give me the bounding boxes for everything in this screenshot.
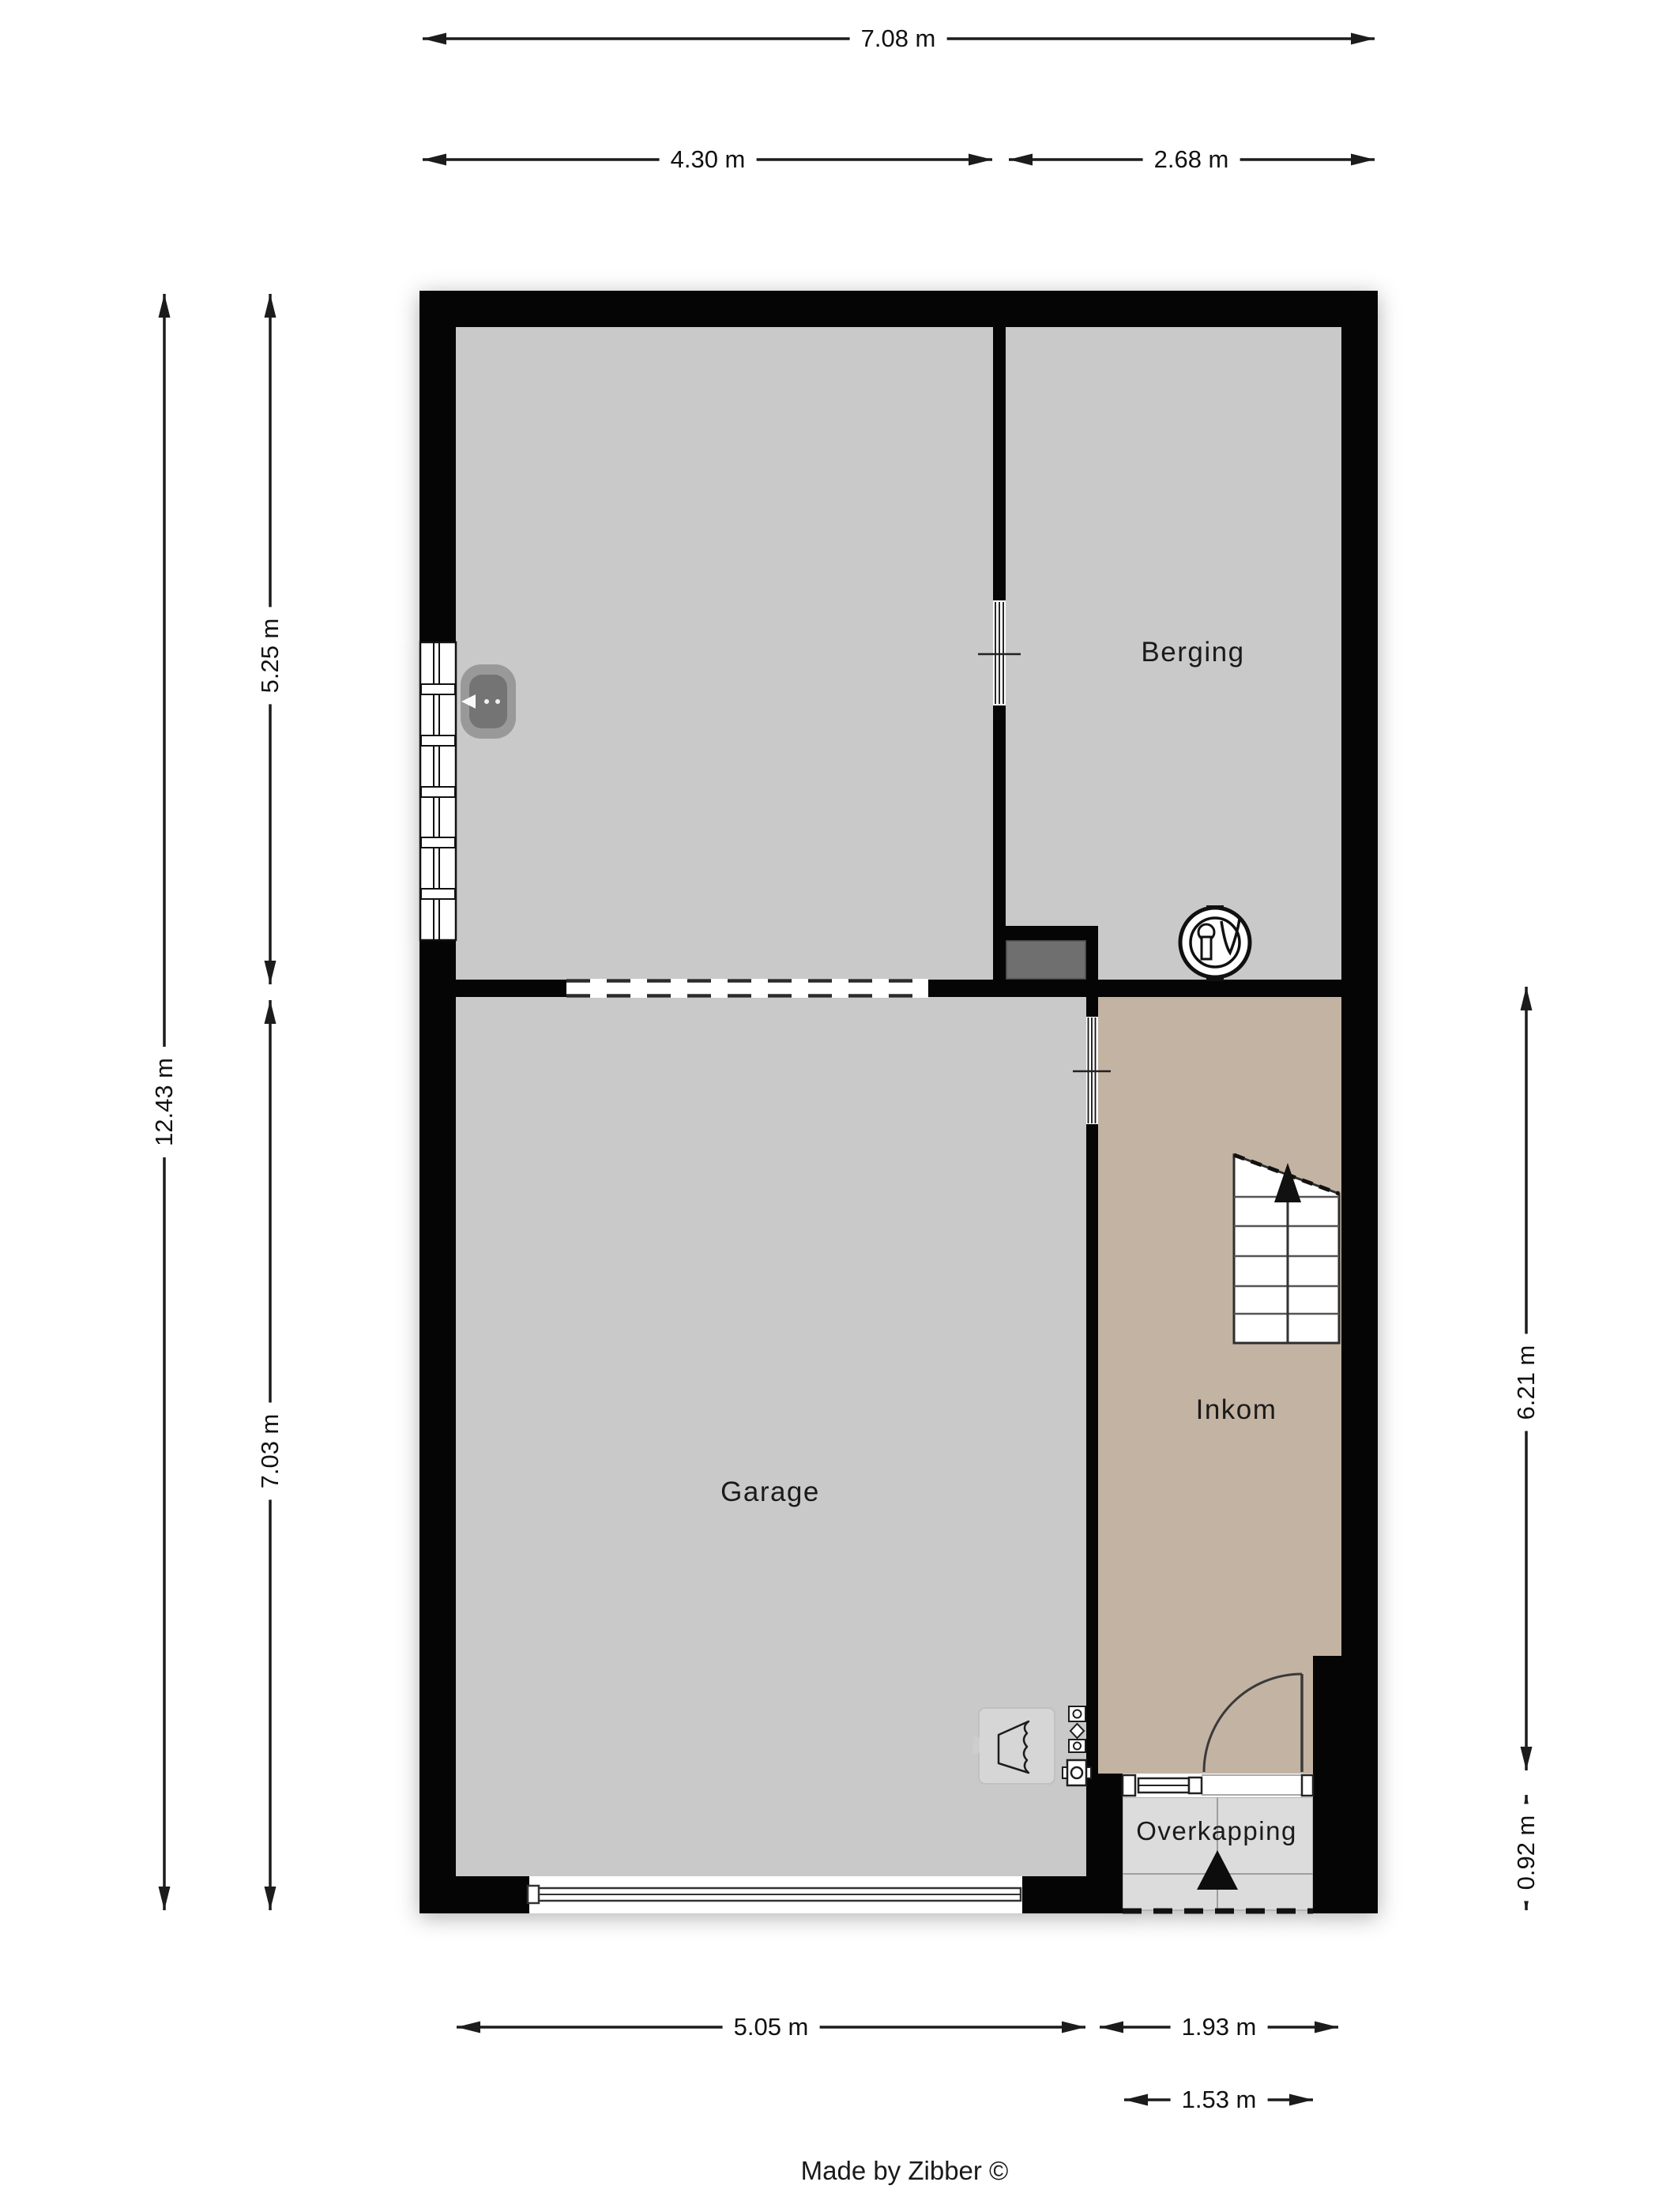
radiator-icon (461, 664, 516, 739)
dim-label-inkom-width: 1.93 m (1171, 2013, 1268, 2041)
dim-label-width-total: 7.08 m (850, 24, 947, 53)
room-label-berging: Berging (1141, 637, 1244, 668)
dim-label-height-total: 12.43 m (150, 1047, 179, 1157)
dim-label-height-lower: 7.03 m (256, 1403, 284, 1500)
floorplan-page: Berging Garage Inkom Overkapping 7.08 m … (0, 0, 1659, 2212)
room-label-inkom: Inkom (1196, 1394, 1277, 1426)
window-left (420, 642, 456, 940)
dim-label-overkapping-depth: 0.92 m (1512, 1804, 1540, 1902)
dim-label-overkapping-width: 1.53 m (1171, 2086, 1268, 2114)
dim-label-inkom-height: 6.21 m (1512, 1334, 1540, 1431)
wall-left (419, 291, 456, 1913)
dim-label-width-left: 4.30 m (660, 145, 757, 174)
wall-right-jog (1313, 1656, 1378, 1913)
wall-step-right (1086, 926, 1098, 980)
basin-icon (972, 1708, 1055, 1784)
dim-label-height-upper: 5.25 m (256, 608, 284, 705)
room-label-garage: Garage (720, 1477, 820, 1508)
garage-door (528, 1876, 1022, 1913)
wall-front-pier (1086, 1774, 1123, 1913)
building (419, 291, 1378, 1913)
step-platform (1006, 940, 1086, 980)
room-label-overkapping: Overkapping (1136, 1816, 1297, 1846)
wall-top (419, 291, 1378, 327)
boiler-icon (1180, 905, 1250, 981)
floorplan-svg (0, 0, 1659, 2212)
dim-label-garage-width: 5.05 m (723, 2013, 820, 2041)
wall-step-top (993, 926, 1098, 940)
credit-text: Made by Zibber © (801, 2156, 1009, 2186)
sliding-opening (566, 979, 928, 998)
room-workshop-floor (456, 327, 993, 980)
dim-label-width-right: 2.68 m (1143, 145, 1240, 174)
room-inkom-floor (1098, 997, 1341, 1774)
